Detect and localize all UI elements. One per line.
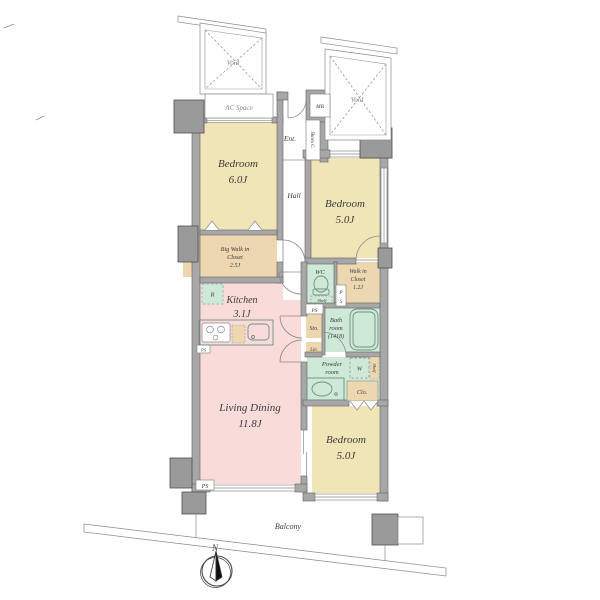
living-kitchen-floor bbox=[200, 283, 301, 484]
big-wic-line2: Closet bbox=[227, 254, 243, 261]
shoes-cabinet-label: Shoes C. bbox=[309, 131, 314, 149]
ps-label-2s: S bbox=[340, 299, 343, 305]
big-wic-size: 2.5J bbox=[230, 262, 241, 269]
balcony-label: Balcony bbox=[275, 522, 302, 531]
big-wic-line1: Big Walk in bbox=[221, 246, 250, 253]
ps-label-1: PS bbox=[311, 308, 318, 314]
bedroom2-name: Bedroom bbox=[325, 198, 365, 210]
shelf-label-powder: Shelf bbox=[372, 364, 377, 374]
bedroom3-size: 5.0J bbox=[337, 450, 357, 462]
storage-label: Sto. bbox=[309, 326, 318, 332]
bedroom1-name: Bedroom bbox=[218, 158, 258, 170]
bedroom1-size: 6.0J bbox=[229, 174, 249, 186]
entrance-door bbox=[288, 100, 306, 118]
wc-label: WC bbox=[315, 269, 325, 276]
washer-label: W bbox=[357, 366, 363, 373]
wic-line1: Walk in bbox=[349, 269, 366, 275]
powder-line1: Powder bbox=[321, 361, 343, 368]
bedroom3-sliding-door bbox=[304, 430, 307, 476]
bedroom2-size: 5.0J bbox=[336, 214, 356, 226]
ps-label-3: PS bbox=[200, 348, 207, 353]
shelf-label-wc: Shelf bbox=[318, 298, 328, 303]
north-label: N bbox=[211, 543, 219, 553]
stove-icon bbox=[202, 323, 230, 342]
hall-label: Hall bbox=[286, 191, 300, 200]
neighbour-ticks bbox=[4, 24, 44, 120]
refrigerator-label: R bbox=[210, 292, 215, 299]
floor-plan-page: Bedroom 6.0J Big Walk in Closet 2.5J Bed… bbox=[0, 0, 600, 600]
bathroom-line2: room bbox=[329, 325, 343, 332]
void-right bbox=[325, 49, 391, 140]
ps-label-4: PS bbox=[201, 484, 209, 490]
kitchen-size: 3.1J bbox=[233, 309, 252, 320]
powder-line2: room bbox=[325, 369, 339, 376]
dishwasher-space bbox=[232, 325, 245, 343]
living-dining-size: 11.8J bbox=[238, 418, 262, 430]
wic-line2: Closet bbox=[351, 277, 366, 283]
compass-icon bbox=[201, 551, 233, 588]
bathroom-size: (1418) bbox=[328, 333, 344, 340]
linen-label: Lin. bbox=[309, 348, 318, 353]
floor-plan-drawing: Bedroom 6.0J Big Walk in Closet 2.5J Bed… bbox=[0, 0, 600, 600]
bedroom3-name: Bedroom bbox=[326, 434, 366, 446]
ac-space-label: AC Space bbox=[224, 104, 252, 112]
void-label-left: Void bbox=[227, 59, 240, 67]
kitchen-name: Kitchen bbox=[225, 295, 257, 306]
hall-lower-floor bbox=[283, 262, 301, 300]
wic-size: 1.2J bbox=[353, 285, 363, 291]
bathroom-line1: Bath bbox=[330, 317, 342, 324]
meter-box-label: MB bbox=[315, 104, 325, 110]
bedroom1-door bbox=[283, 240, 305, 262]
closet-label: Clo. bbox=[357, 390, 367, 396]
entrance-label: Ent. bbox=[283, 134, 296, 143]
void-label-right: Void bbox=[351, 96, 364, 104]
living-dining-name: Living Dining bbox=[218, 402, 281, 414]
